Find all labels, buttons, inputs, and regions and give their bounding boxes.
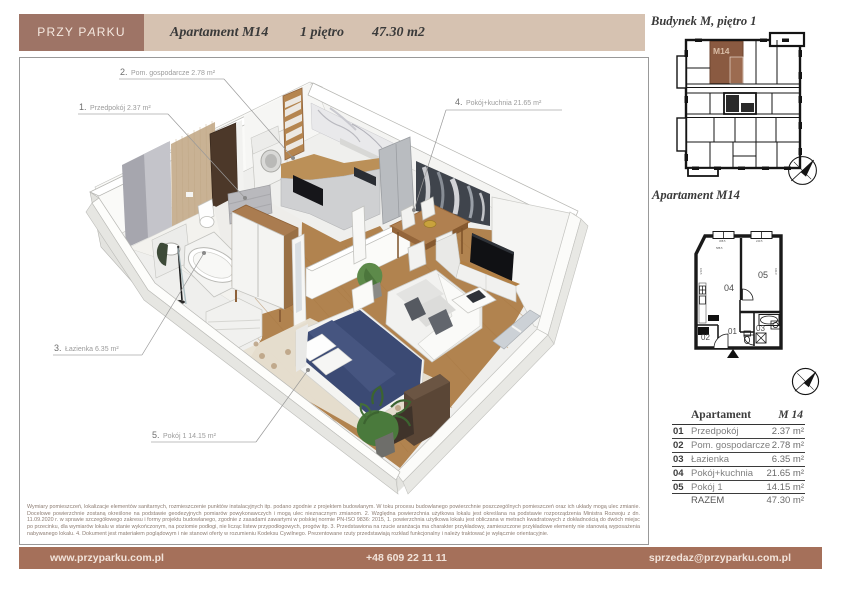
- svg-text:02: 02: [701, 333, 710, 342]
- svg-text:03: 03: [756, 324, 765, 333]
- svg-text:04: 04: [724, 283, 734, 293]
- svg-text:Przedpokój 2.37 m²: Przedpokój 2.37 m²: [90, 105, 151, 112]
- svg-text:308.5: 308.5: [719, 239, 726, 243]
- svg-text:103.5: 103.5: [699, 268, 703, 275]
- svg-text:Pokój+kuchnia 21.65 m²: Pokój+kuchnia 21.65 m²: [466, 100, 542, 107]
- svg-text:2.: 2.: [120, 67, 128, 77]
- svg-text:3.: 3.: [54, 343, 62, 353]
- svg-text:01: 01: [728, 327, 737, 336]
- svg-text:05: 05: [758, 270, 768, 280]
- svg-text:1.: 1.: [79, 102, 87, 112]
- svg-text:Pom. gospodarcze 2.78 m²: Pom. gospodarcze 2.78 m²: [131, 70, 216, 77]
- svg-text:5.: 5.: [152, 430, 160, 440]
- svg-text:M14: M14: [713, 46, 730, 56]
- svg-text:4.: 4.: [455, 97, 463, 107]
- svg-text:240.5: 240.5: [756, 239, 763, 243]
- svg-text:Pokój 1 14.15 m²: Pokój 1 14.15 m²: [163, 433, 217, 440]
- svg-text:Łazienka 6.35 m²: Łazienka 6.35 m²: [65, 346, 119, 353]
- svg-text:443.0: 443.0: [774, 268, 778, 275]
- svg-text:588.5: 588.5: [716, 246, 723, 250]
